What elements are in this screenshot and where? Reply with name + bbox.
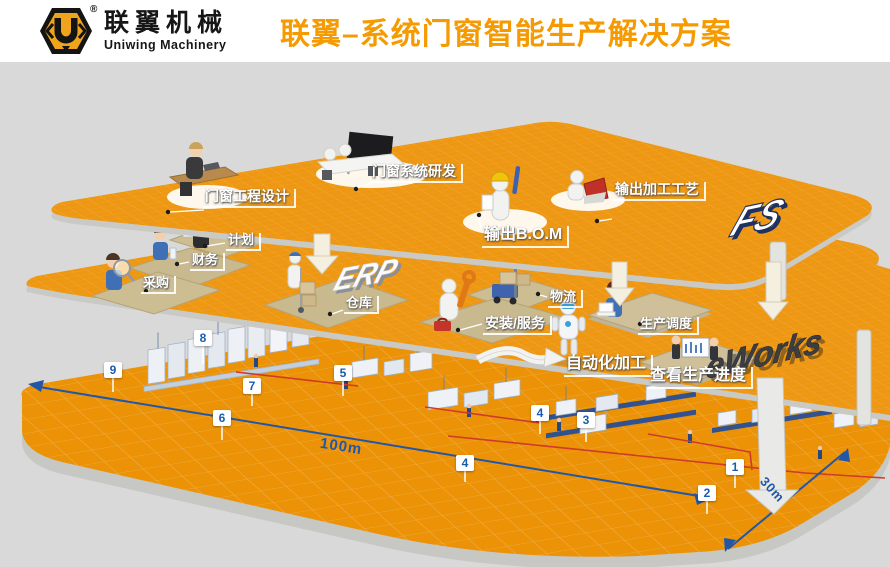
marker-6: 6: [213, 410, 231, 426]
station-label-progress: 查看生产进度: [648, 367, 753, 389]
header-bar: ® 联翼机械 Uniwing Machinery 联翼–系统门窗智能生产解决方案: [0, 0, 890, 62]
progress-figures: [672, 336, 719, 361]
brand-name-en: Uniwing Machinery: [104, 39, 228, 52]
marker-4a: 4: [531, 405, 549, 421]
station-label-purchase: 采购: [141, 276, 176, 294]
diagram-svg: ERP ERP eWorks eWorks: [0, 62, 890, 567]
marker-7: 7: [243, 378, 261, 394]
marker-9: 9: [104, 362, 122, 378]
station-label-automation: 自动化加工: [564, 355, 653, 377]
brand-text: 联翼机械 Uniwing Machinery: [104, 11, 228, 52]
page-title: 联翼–系统门窗智能生产解决方案: [280, 9, 732, 53]
solution-diagram: ERP ERP eWorks eWorks: [0, 62, 890, 567]
station-label-bom: 输出B.O.M: [482, 226, 569, 248]
station-label-logistics: 物流: [548, 290, 583, 308]
marker-3: 3: [577, 412, 595, 428]
company-logo: ® 联翼机械 Uniwing Machinery: [38, 6, 228, 56]
station-label-plan: 计划: [226, 233, 261, 251]
brand-name-cn: 联翼机械: [104, 11, 228, 36]
marker-1: 1: [726, 459, 744, 475]
marker-5: 5: [334, 365, 352, 381]
marker-8: 8: [194, 330, 212, 346]
station-label-process: 输出加工工艺: [613, 182, 706, 201]
logo-hexagon-icon: [38, 6, 94, 56]
infographic-canvas: ® 联翼机械 Uniwing Machinery 联翼–系统门窗智能生产解决方案: [0, 0, 890, 567]
marker-4b: 4: [456, 455, 474, 471]
station-label-finance: 财务: [190, 253, 225, 271]
station-label-warehouse: 仓库: [344, 296, 379, 314]
station-label-service: 安装/服务: [483, 316, 552, 335]
station-label-design: 门窗工程设计: [203, 189, 296, 208]
station-label-rd: 门窗系统研发: [370, 164, 463, 183]
marker-2: 2: [698, 485, 716, 501]
registered-mark: ®: [90, 4, 97, 15]
support-pillar-right: [857, 330, 871, 425]
station-label-scheduling: 生产调度: [638, 317, 699, 335]
